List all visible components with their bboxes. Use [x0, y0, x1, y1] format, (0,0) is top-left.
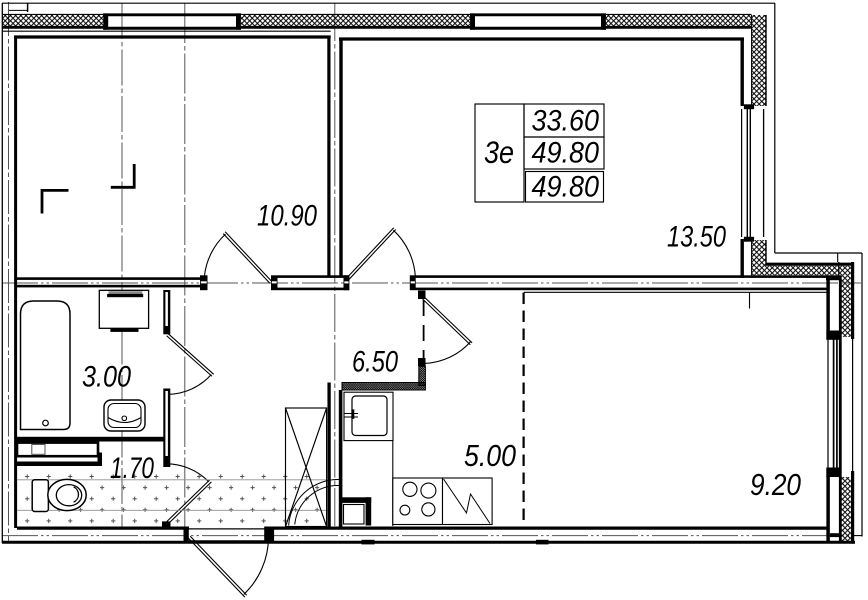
svg-text:9.20: 9.20	[750, 467, 801, 502]
svg-text:10.90: 10.90	[257, 200, 317, 233]
svg-text:13.50: 13.50	[667, 221, 726, 254]
svg-text:49.80: 49.80	[532, 137, 600, 170]
svg-text:6.50: 6.50	[352, 346, 398, 379]
svg-text:1.70: 1.70	[110, 452, 154, 485]
svg-text:33.60: 33.60	[532, 105, 600, 138]
svg-text:49.80: 49.80	[532, 171, 600, 204]
svg-text:3.00: 3.00	[82, 361, 132, 394]
svg-text:5.00: 5.00	[464, 438, 516, 473]
svg-text:3е: 3е	[484, 134, 514, 170]
